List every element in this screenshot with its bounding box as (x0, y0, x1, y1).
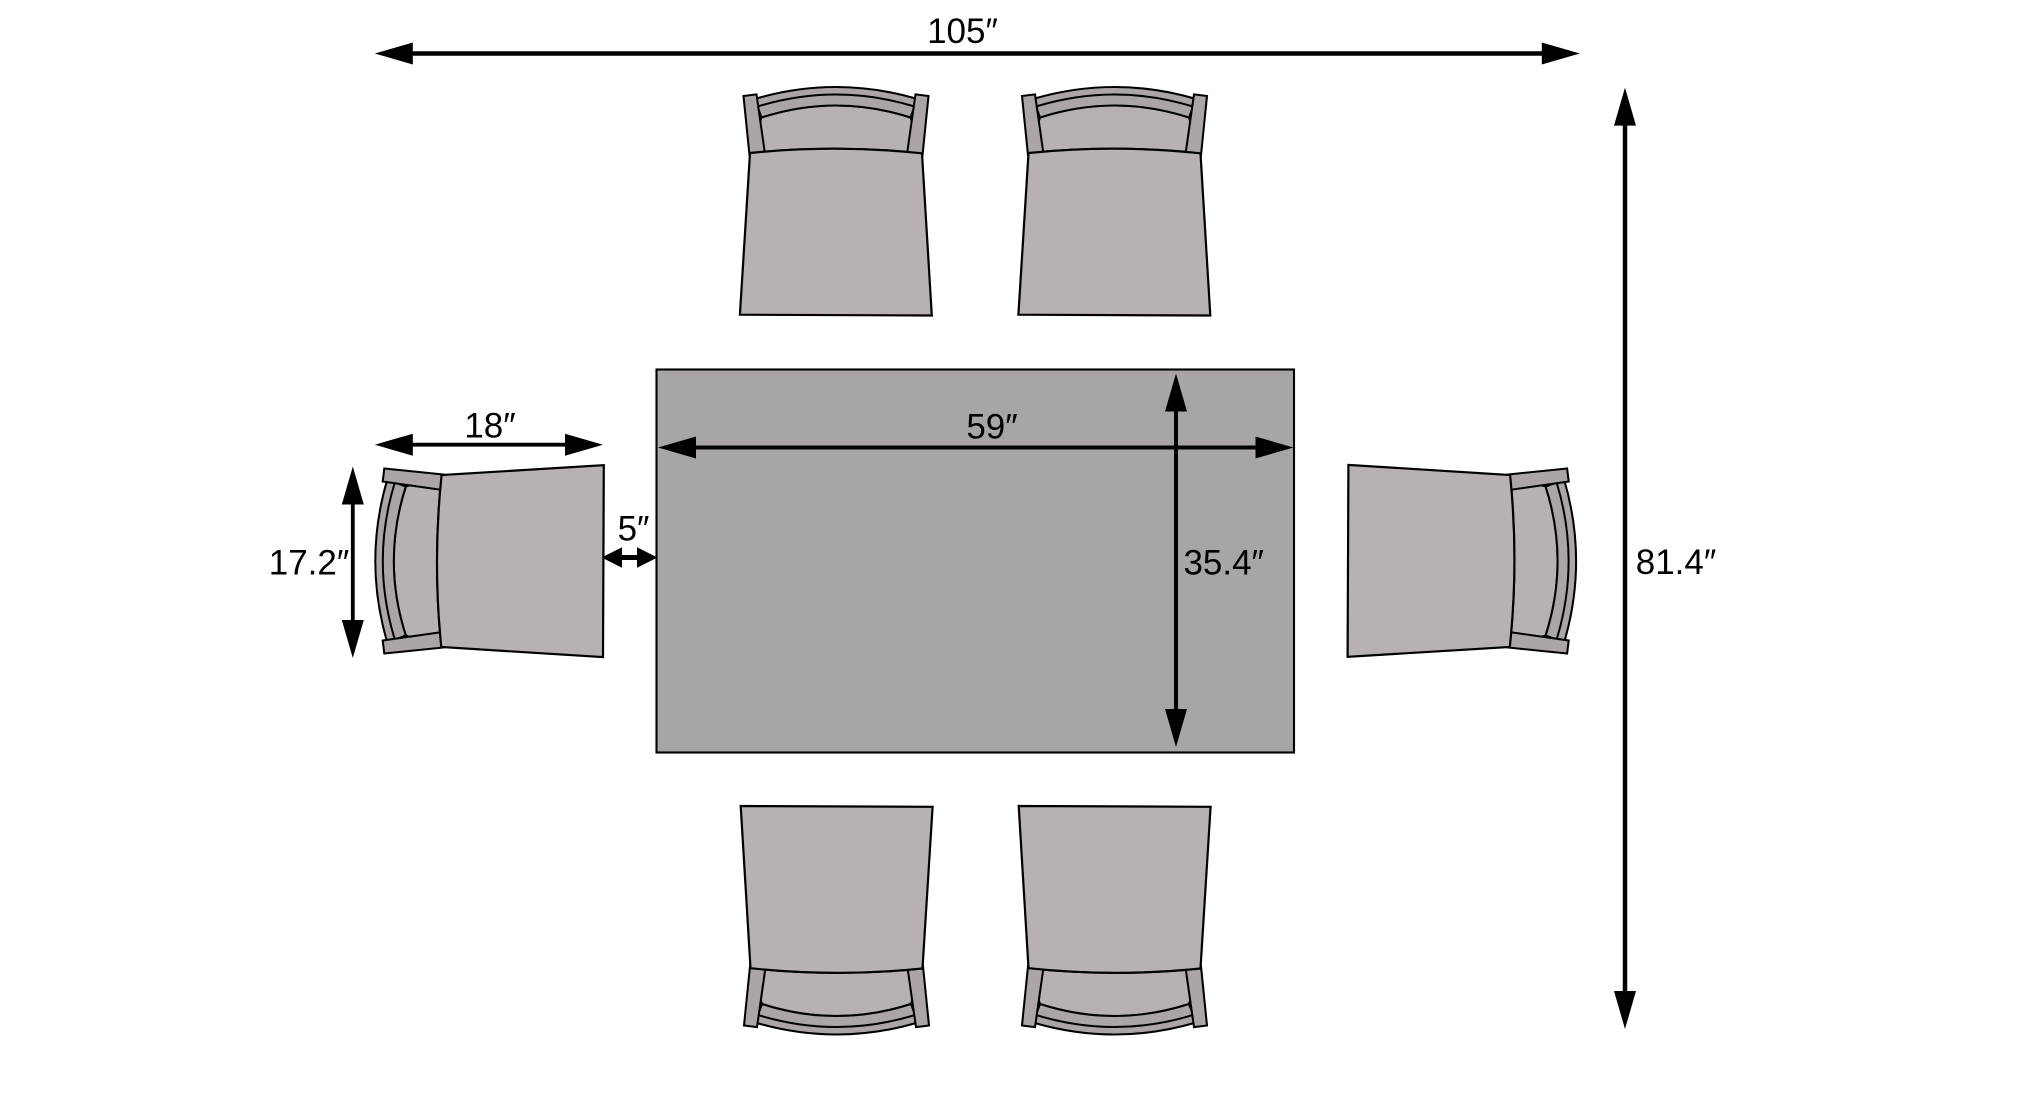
svg-text:81.4″: 81.4″ (1636, 543, 1717, 582)
svg-text:17.2″: 17.2″ (269, 544, 350, 583)
svg-text:35.4″: 35.4″ (1183, 544, 1264, 583)
svg-text:5″: 5″ (618, 510, 650, 549)
svg-text:59″: 59″ (966, 408, 1017, 447)
svg-text:105″: 105″ (927, 12, 998, 51)
svg-text:18″: 18″ (464, 407, 515, 446)
